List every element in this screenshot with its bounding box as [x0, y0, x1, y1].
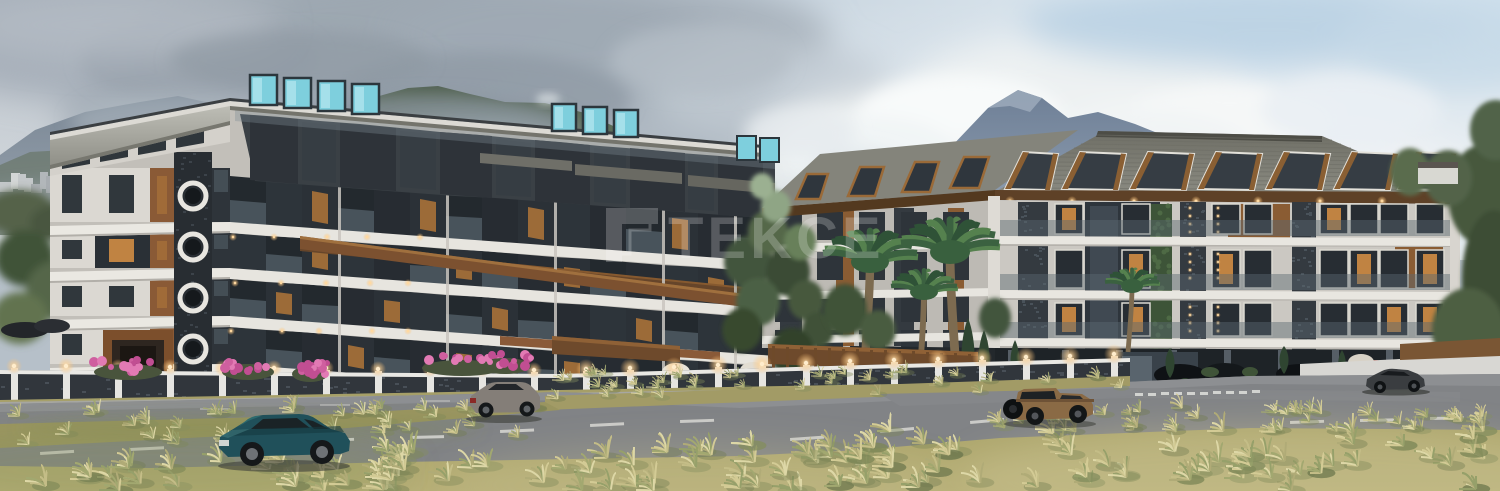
- svg-text:TEKCE: TEKCE: [668, 206, 885, 271]
